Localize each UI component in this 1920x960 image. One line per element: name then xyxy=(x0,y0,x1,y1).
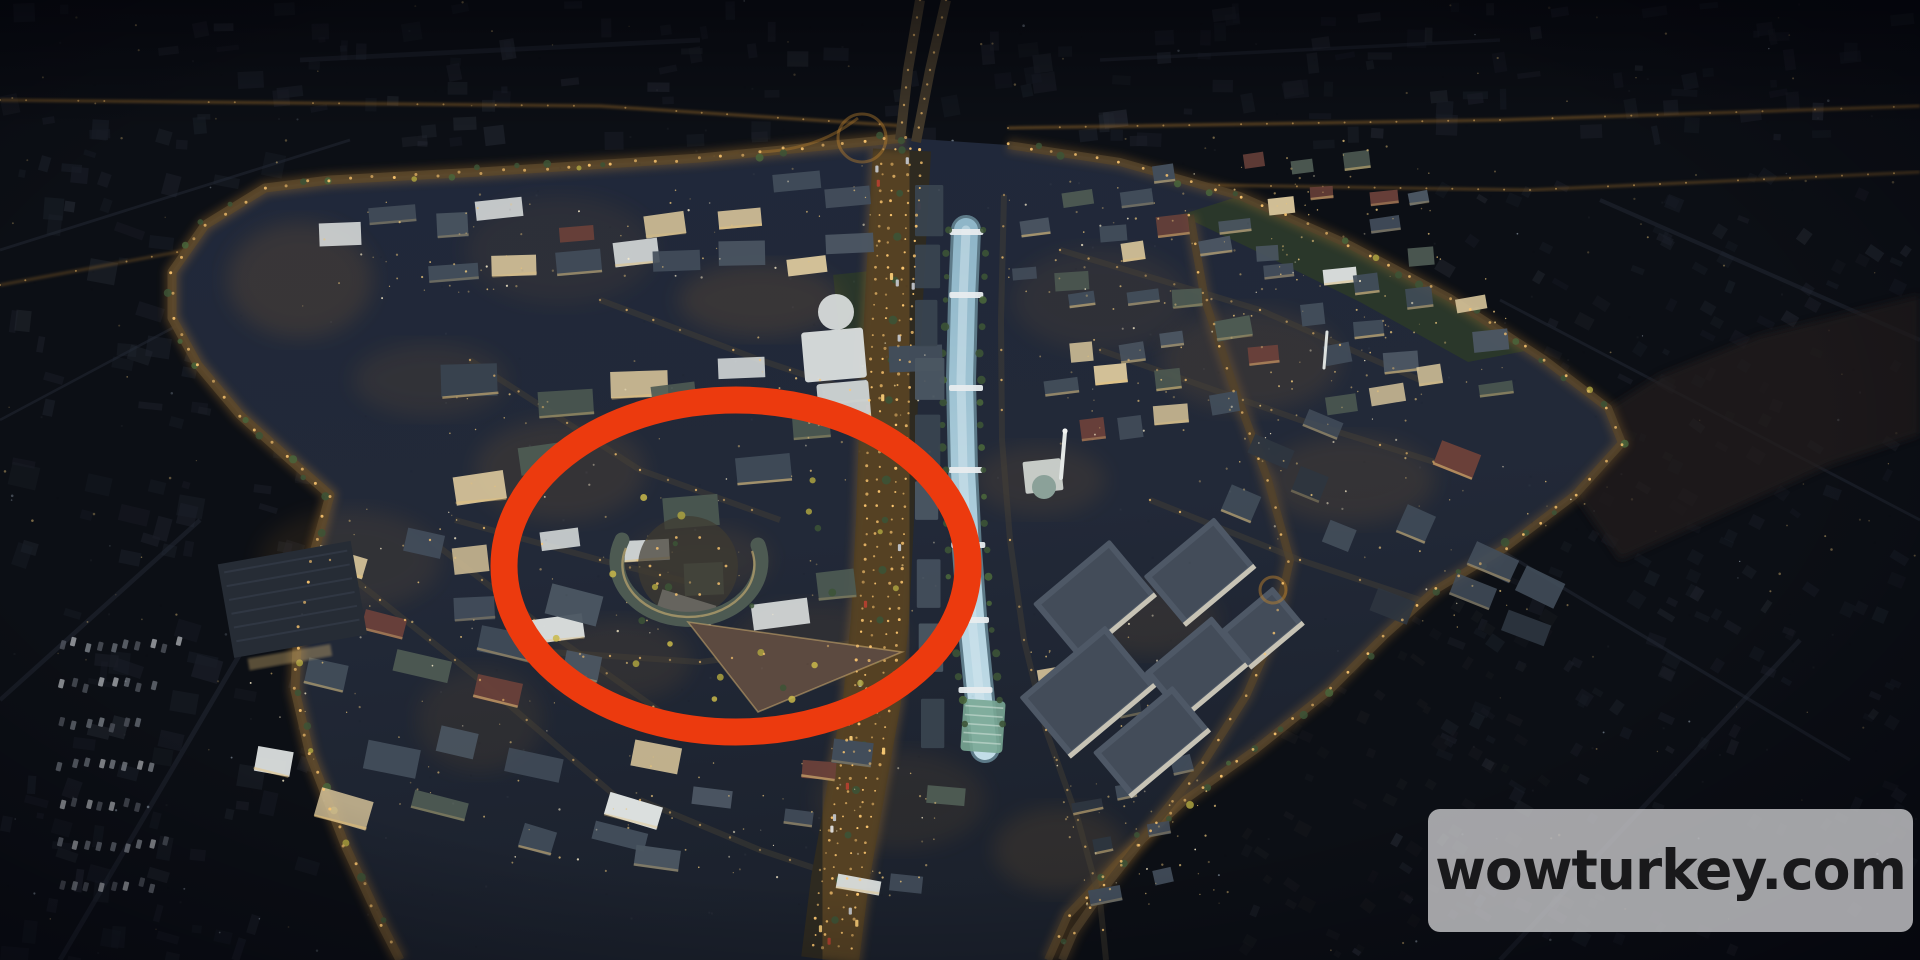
screenshot-root: wowturkey.com xyxy=(0,0,1920,960)
watermark-badge: wowturkey.com xyxy=(1428,809,1913,932)
watermark-text: wowturkey.com xyxy=(1435,843,1906,898)
